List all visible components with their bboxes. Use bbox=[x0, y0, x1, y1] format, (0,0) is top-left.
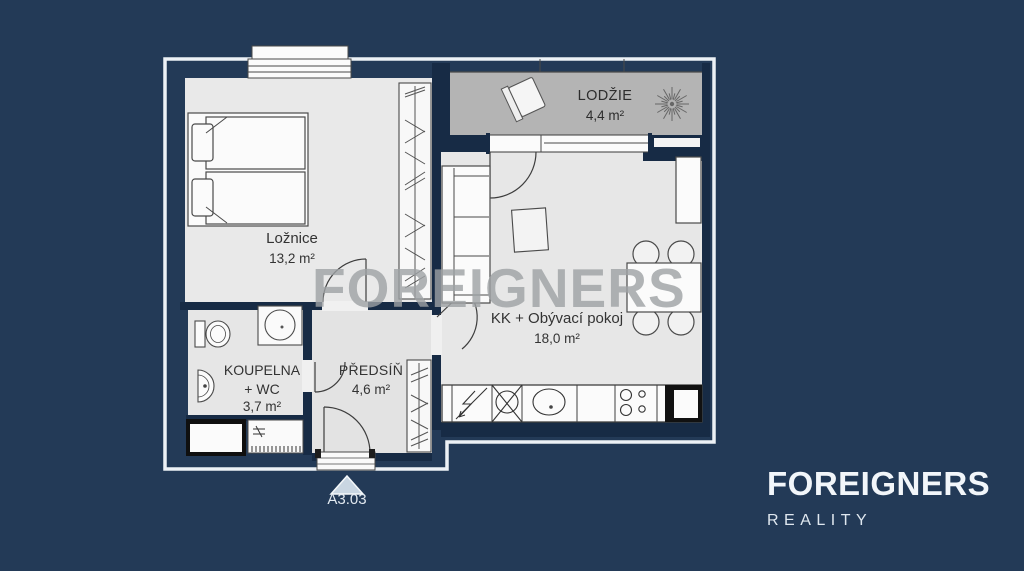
unit-number: A3.03 bbox=[327, 491, 366, 508]
entry-threshold bbox=[315, 449, 375, 470]
hallway-label: PŘEDSÍŇ 4,6 m² bbox=[339, 362, 403, 397]
room-name: LODŽIE bbox=[578, 88, 633, 104]
coffee-table-icon bbox=[512, 208, 549, 252]
bedroom-window-icon bbox=[248, 46, 351, 78]
watermark-text: FOREIGNERS bbox=[312, 261, 686, 316]
bathroom-label: KOUPELNA + WC 3,7 m² bbox=[224, 362, 300, 414]
room-area: 13,2 m² bbox=[266, 251, 318, 266]
room-area: 3,7 m² bbox=[224, 399, 300, 414]
loggia-railing bbox=[450, 59, 702, 72]
loggia-sill bbox=[654, 138, 700, 147]
room-area: 4,4 m² bbox=[578, 108, 633, 123]
room-name: Ložnice bbox=[266, 230, 318, 247]
bedroom-label: Ložnice 13,2 m² bbox=[266, 230, 318, 266]
washer-icon bbox=[186, 419, 246, 456]
bed-icon bbox=[188, 113, 308, 226]
room-area: 4,6 m² bbox=[339, 382, 403, 397]
room-name-line2: + WC bbox=[224, 381, 300, 397]
room-area: 18,0 m² bbox=[491, 331, 623, 346]
loggia-label: LODŽIE 4,4 m² bbox=[578, 88, 633, 123]
sideboard-icon bbox=[676, 157, 701, 223]
floorplan-screenshot: Ložnice 13,2 m² LODŽIE 4,4 m² KK + Obýva… bbox=[0, 0, 1024, 571]
fridge-icon bbox=[665, 385, 702, 422]
hallway-wardrobe-icon bbox=[407, 360, 431, 452]
room-name: KOUPELNA bbox=[224, 362, 300, 378]
toilet-icon bbox=[195, 321, 230, 347]
brand-logo: FOREIGNERS REALITY bbox=[767, 467, 990, 529]
brand-logo-name: FOREIGNERS bbox=[767, 467, 990, 500]
radiator-icon bbox=[248, 420, 303, 453]
room-name: PŘEDSÍŇ bbox=[339, 362, 403, 378]
balcony-window-icon bbox=[486, 133, 652, 154]
shower-icon bbox=[258, 306, 302, 345]
kitchen-counter-icon bbox=[442, 385, 702, 422]
brand-logo-subtitle: REALITY bbox=[767, 513, 990, 529]
